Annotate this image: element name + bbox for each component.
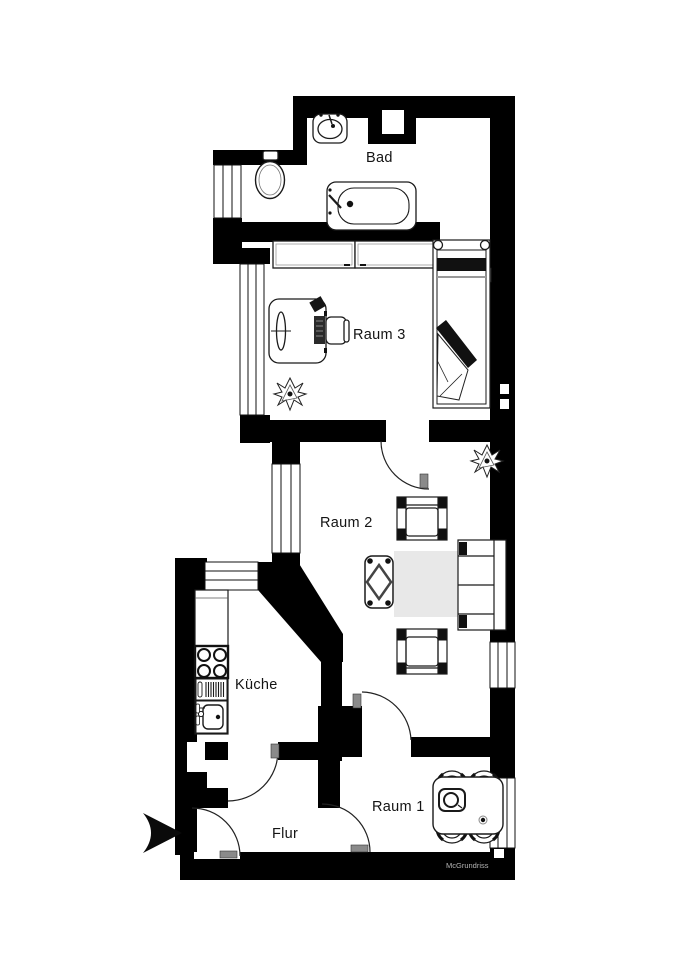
dining-table-icon bbox=[433, 777, 503, 834]
wardrobe-icon bbox=[273, 241, 437, 268]
shaft-notch bbox=[382, 110, 404, 134]
desk-chair-icon bbox=[326, 317, 349, 344]
floor-plan-drawing bbox=[0, 0, 679, 960]
room-label-bad: Bad bbox=[366, 150, 393, 166]
bed-icon bbox=[433, 240, 490, 408]
stove-icon bbox=[195, 646, 228, 678]
kueche-fixtures bbox=[195, 590, 228, 734]
coffee-table-icon bbox=[365, 556, 393, 608]
window-raum2-right bbox=[490, 642, 515, 688]
sink-icon bbox=[313, 113, 347, 143]
window-raum2-left bbox=[272, 464, 300, 553]
window-bad-left bbox=[214, 165, 241, 218]
plant-icon bbox=[274, 378, 306, 410]
chimney-notch bbox=[500, 399, 509, 409]
armchair-icon bbox=[397, 497, 447, 540]
door-raum3 bbox=[381, 441, 429, 489]
chimney-notch bbox=[500, 384, 509, 394]
room-label-raum1: Raum 1 bbox=[372, 799, 425, 815]
door-entrance bbox=[192, 808, 240, 858]
raum3-fixtures bbox=[269, 240, 490, 410]
bathtub-icon bbox=[327, 182, 416, 230]
room-label-raum3: Raum 3 bbox=[353, 327, 406, 343]
watermark: McGrundriss bbox=[446, 861, 489, 870]
raum1-fixtures bbox=[433, 771, 503, 843]
room-label-kueche: Küche bbox=[235, 677, 278, 693]
room-label-raum2: Raum 2 bbox=[320, 515, 373, 531]
floor-plan: Bad Raum 3 Raum 2 Küche Flur Raum 1 McGr… bbox=[0, 0, 679, 960]
room-label-flur: Flur bbox=[272, 826, 298, 842]
sofa-icon bbox=[458, 540, 506, 630]
raum2-fixtures bbox=[365, 445, 506, 674]
window-raum3-left bbox=[240, 264, 264, 415]
kitchen-sink-icon bbox=[196, 701, 227, 733]
door-kueche bbox=[228, 744, 279, 801]
door-flur-raum1 bbox=[322, 804, 370, 852]
window-kueche-top bbox=[205, 562, 258, 590]
armchair-icon bbox=[397, 629, 447, 674]
dishwasher-icon bbox=[196, 679, 227, 700]
desk-icon bbox=[269, 296, 327, 363]
rug bbox=[394, 551, 462, 617]
corner-notch bbox=[494, 849, 504, 858]
wall-niche bbox=[187, 742, 205, 772]
